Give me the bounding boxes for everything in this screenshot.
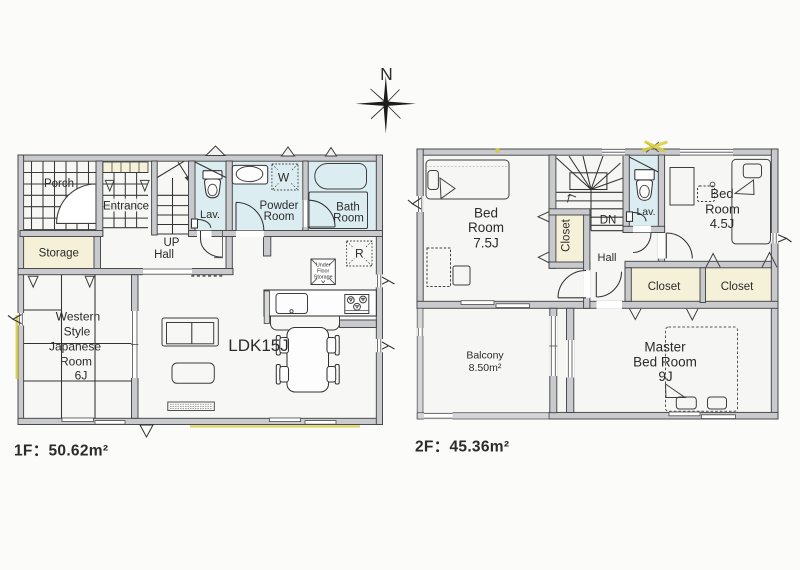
svg-text:Western: Western <box>56 310 100 324</box>
svg-text:9J: 9J <box>658 369 672 384</box>
svg-text:8.50m²: 8.50m² <box>469 362 502 374</box>
svg-text:4.5J: 4.5J <box>710 216 735 231</box>
svg-text:1F：50.62m²: 1F：50.62m² <box>14 443 108 460</box>
svg-text:Storage: Storage <box>39 248 79 260</box>
svg-text:Master: Master <box>644 340 686 355</box>
svg-text:Japanese: Japanese <box>49 340 101 354</box>
svg-text:Lav.: Lav. <box>636 206 655 218</box>
svg-text:Balcony: Balcony <box>466 350 504 362</box>
svg-text:Room: Room <box>468 220 504 235</box>
svg-text:W: W <box>278 171 290 185</box>
svg-text:UP: UP <box>164 237 180 249</box>
svg-text:R: R <box>355 247 364 261</box>
svg-text:Storage: Storage <box>314 275 333 281</box>
svg-text:Room: Room <box>333 213 364 225</box>
svg-text:Bed: Bed <box>474 206 498 221</box>
svg-text:Closet: Closet <box>721 281 754 293</box>
svg-text:Entrance: Entrance <box>103 201 149 213</box>
svg-text:Closet: Closet <box>561 218 573 251</box>
svg-text:7.5J: 7.5J <box>473 236 499 251</box>
svg-text:Bed: Bed <box>710 186 733 201</box>
svg-text:N: N <box>380 64 393 84</box>
svg-text:Room: Room <box>60 355 92 369</box>
svg-text:LDK15J: LDK15J <box>228 336 288 355</box>
svg-text:Room: Room <box>264 211 295 223</box>
svg-text:DN: DN <box>600 215 617 227</box>
svg-text:2F：45.36m²: 2F：45.36m² <box>415 439 509 456</box>
svg-text:Style: Style <box>64 325 91 339</box>
svg-text:Room: Room <box>705 202 740 217</box>
svg-text:Closet: Closet <box>648 281 681 293</box>
svg-text:Bed Room: Bed Room <box>633 355 697 370</box>
svg-text:6J: 6J <box>75 369 88 383</box>
svg-text:Hall: Hall <box>154 249 174 261</box>
svg-text:Lav.: Lav. <box>200 209 220 221</box>
svg-text:Hall: Hall <box>598 252 617 264</box>
svg-text:Porch: Porch <box>44 178 74 190</box>
